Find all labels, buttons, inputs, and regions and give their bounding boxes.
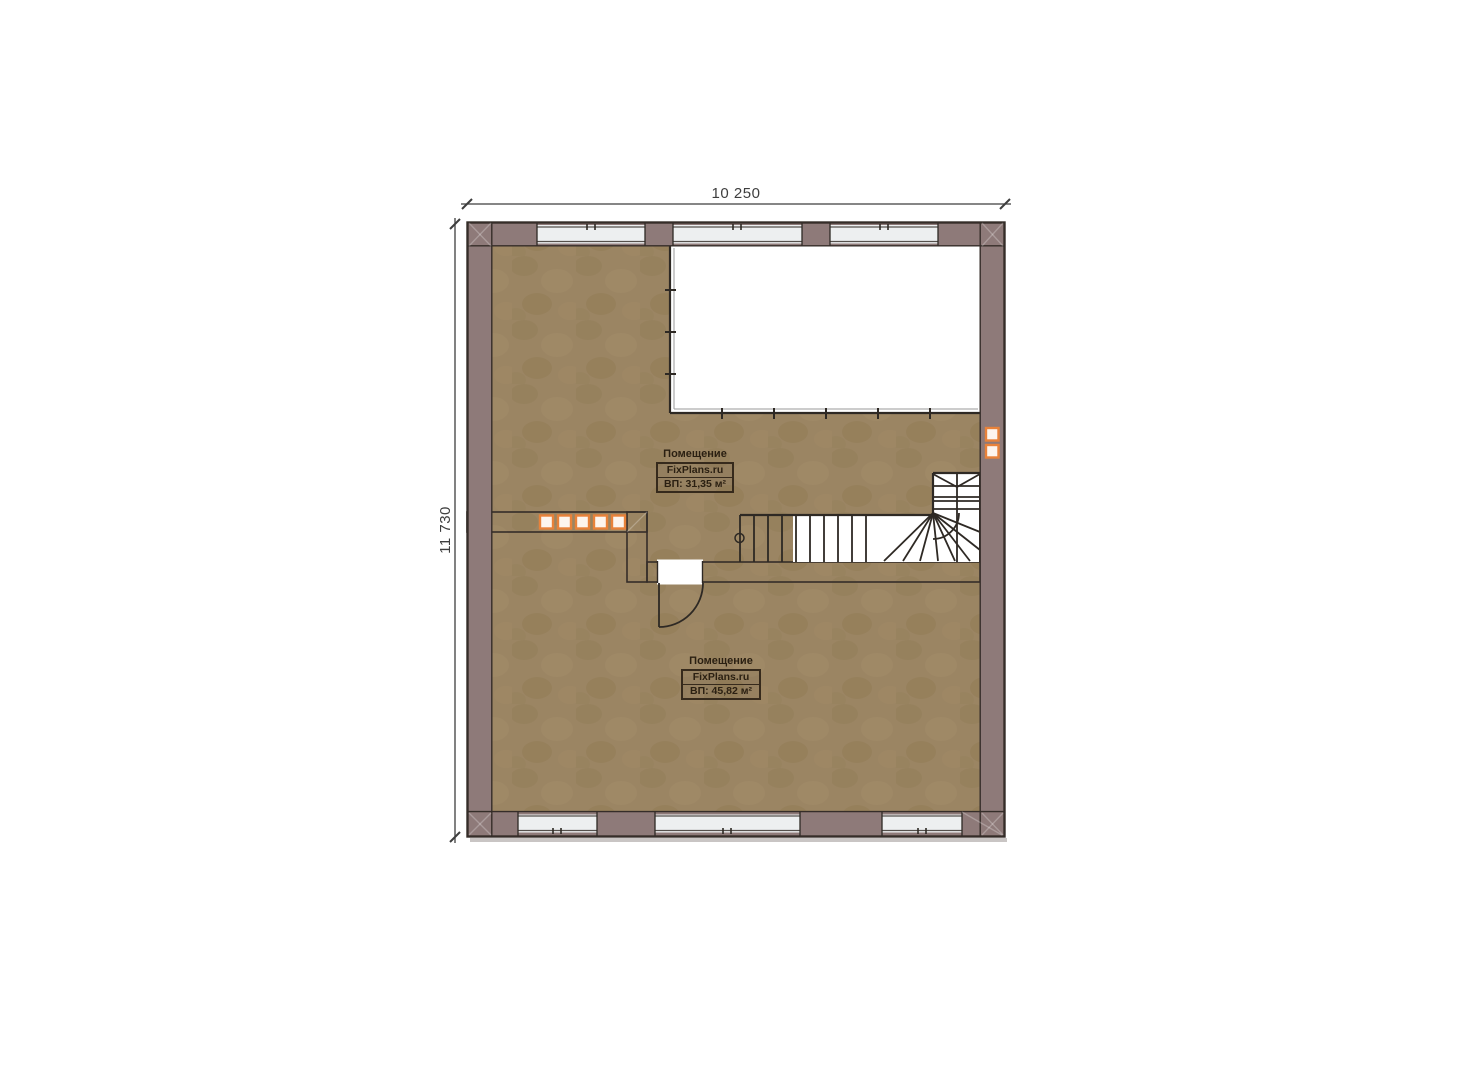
room-info-box: FixPlans.ru ВП: 31,35 м² — [656, 462, 734, 493]
window-symbol — [518, 815, 597, 835]
dimension-width-label: 10 250 — [696, 185, 776, 202]
floorplan-page: 10 250 11 730 Помещение FixPlans.ru ВП: … — [0, 0, 1473, 1080]
window-symbol — [655, 815, 800, 835]
building-shadow — [470, 838, 1007, 842]
room-label-1: Помещение FixPlans.ru ВП: 31,35 м² — [656, 448, 734, 493]
room-label-2: Помещение FixPlans.ru ВП: 45,82 м² — [681, 655, 761, 700]
room-title: Помещение — [656, 448, 734, 461]
window-symbol — [830, 224, 938, 244]
wall-post-markers-left — [540, 516, 625, 529]
room-title: Помещение — [681, 655, 761, 668]
room-brand: FixPlans.ru — [658, 464, 732, 477]
room-brand: FixPlans.ru — [683, 671, 759, 684]
floorplan-drawing — [0, 0, 1473, 1080]
window-symbol — [537, 224, 645, 244]
window-symbol — [673, 224, 802, 244]
void-area — [665, 245, 980, 419]
window-symbol — [882, 815, 962, 835]
dimension-height-label: 11 730 — [437, 500, 453, 560]
room-area: ВП: 45,82 м² — [683, 684, 759, 698]
room-area: ВП: 31,35 м² — [658, 477, 732, 491]
room-info-box: FixPlans.ru ВП: 45,82 м² — [681, 669, 761, 700]
top-windows — [537, 222, 938, 246]
